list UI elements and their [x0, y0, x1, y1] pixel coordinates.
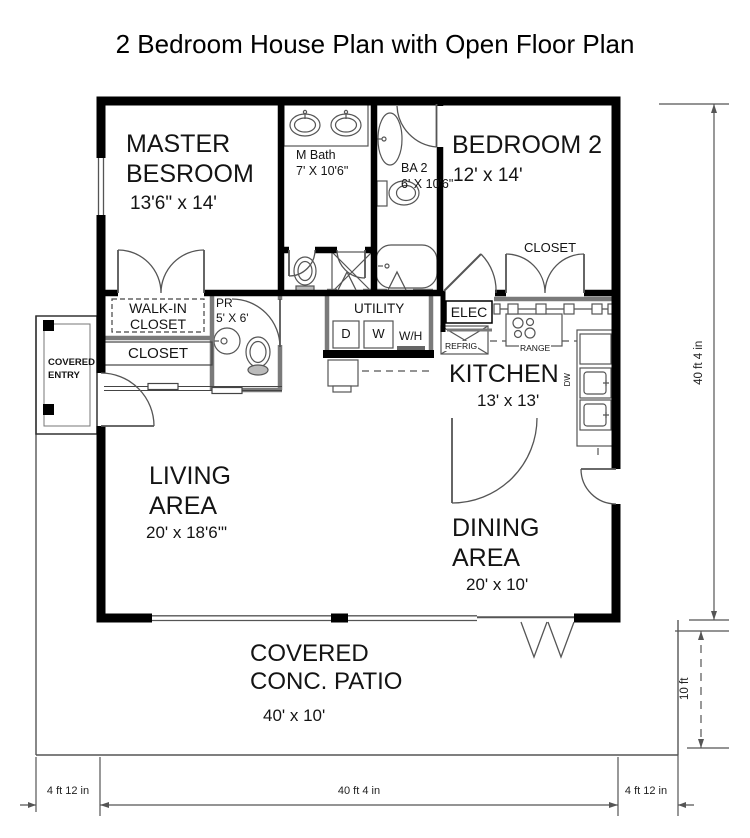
- front-door: [101, 373, 154, 426]
- range-icon: [506, 314, 562, 346]
- sliding-door-panel: [212, 388, 242, 394]
- dim-right-height: 40 ft 4 in: [693, 318, 707, 408]
- refrig-label: REFRIG: [444, 341, 478, 351]
- dim-bottom-left: 4 ft 12 in: [36, 785, 100, 798]
- sliding-door-panel: [148, 384, 178, 390]
- bedroom2-closet-label: CLOSET: [524, 240, 576, 255]
- folding-door-icon: [521, 622, 574, 657]
- elec-label: ELEC: [446, 304, 492, 321]
- entry-post-icon: [43, 404, 54, 415]
- kitchen-pantry-door: [452, 418, 537, 503]
- dim-bottom-center: 40 ft 4 in: [100, 785, 618, 798]
- bedroom2-entry-door: [444, 254, 496, 293]
- kitchen-dims: 13' x 13': [477, 391, 539, 411]
- bedroom2-label: BEDROOM 2: [452, 131, 602, 161]
- range-label: RANGE: [519, 343, 551, 353]
- entry-post-icon: [43, 320, 54, 331]
- patio-dims: 40' x 10': [263, 706, 325, 726]
- pr-toilet-icon: [246, 337, 270, 375]
- island-icon: [328, 360, 358, 392]
- floorplan-drawing: [0, 0, 750, 838]
- kitchen-cabinets-icon: [494, 304, 614, 314]
- dining-area-label: DINING AREA: [452, 514, 540, 573]
- ba2-label: BA 2 6' X 10'6": [401, 160, 453, 193]
- window-bottom-1: [152, 616, 331, 621]
- living-area-dims: 20' x 18'6'": [146, 523, 227, 543]
- master-bedroom-dims: 13'6" x 14': [130, 193, 217, 215]
- patio-label: COVERED CONC. PATIO: [250, 640, 402, 697]
- ba2-entry-door: [397, 104, 437, 147]
- pr-sink-icon: [213, 328, 240, 354]
- plan-title: 2 Bedroom House Plan with Open Floor Pla…: [0, 29, 750, 60]
- master-double-doors: [118, 250, 204, 293]
- walk-in-closet-label: WALK-IN CLOSET: [112, 300, 204, 332]
- kitchen-sink-counter-icon: [577, 330, 614, 446]
- dryer-label: D: [333, 326, 359, 341]
- kitchen-label: KITCHEN: [449, 360, 559, 390]
- dw-label: DW: [563, 373, 572, 386]
- floor-plan-page: 2 Bedroom House Plan with Open Floor Pla…: [0, 0, 750, 838]
- bedroom2-dims: 12' x 14': [453, 165, 523, 187]
- mbath-vanity-icon: [284, 104, 368, 146]
- dim-patio-depth: 10 ft: [679, 644, 693, 734]
- dim-bottom-right: 4 ft 12 in: [614, 785, 678, 798]
- water-heater-label: W/H: [399, 329, 422, 343]
- powder-room-label: PR 5' X 6': [216, 296, 249, 326]
- window-left: [99, 158, 104, 215]
- bathtub-icon: [376, 245, 437, 288]
- utility-label: UTILITY: [354, 301, 404, 317]
- bedroom2-closet-doors: [506, 254, 584, 293]
- window-bottom-2: [348, 616, 477, 621]
- side-door: [581, 469, 616, 504]
- hall-closet-label: CLOSET: [104, 345, 212, 363]
- master-bedroom-label: MASTER BESROOM: [126, 130, 254, 189]
- dining-area-dims: 20' x 10': [466, 575, 528, 595]
- m-bath-label: M Bath 7' X 10'6": [296, 147, 348, 180]
- living-area-label: LIVING AREA: [149, 462, 231, 521]
- ba2-sink-icon: [376, 113, 402, 165]
- washer-label: W: [364, 326, 393, 341]
- covered-entry-label: COVERED ENTRY: [48, 357, 95, 383]
